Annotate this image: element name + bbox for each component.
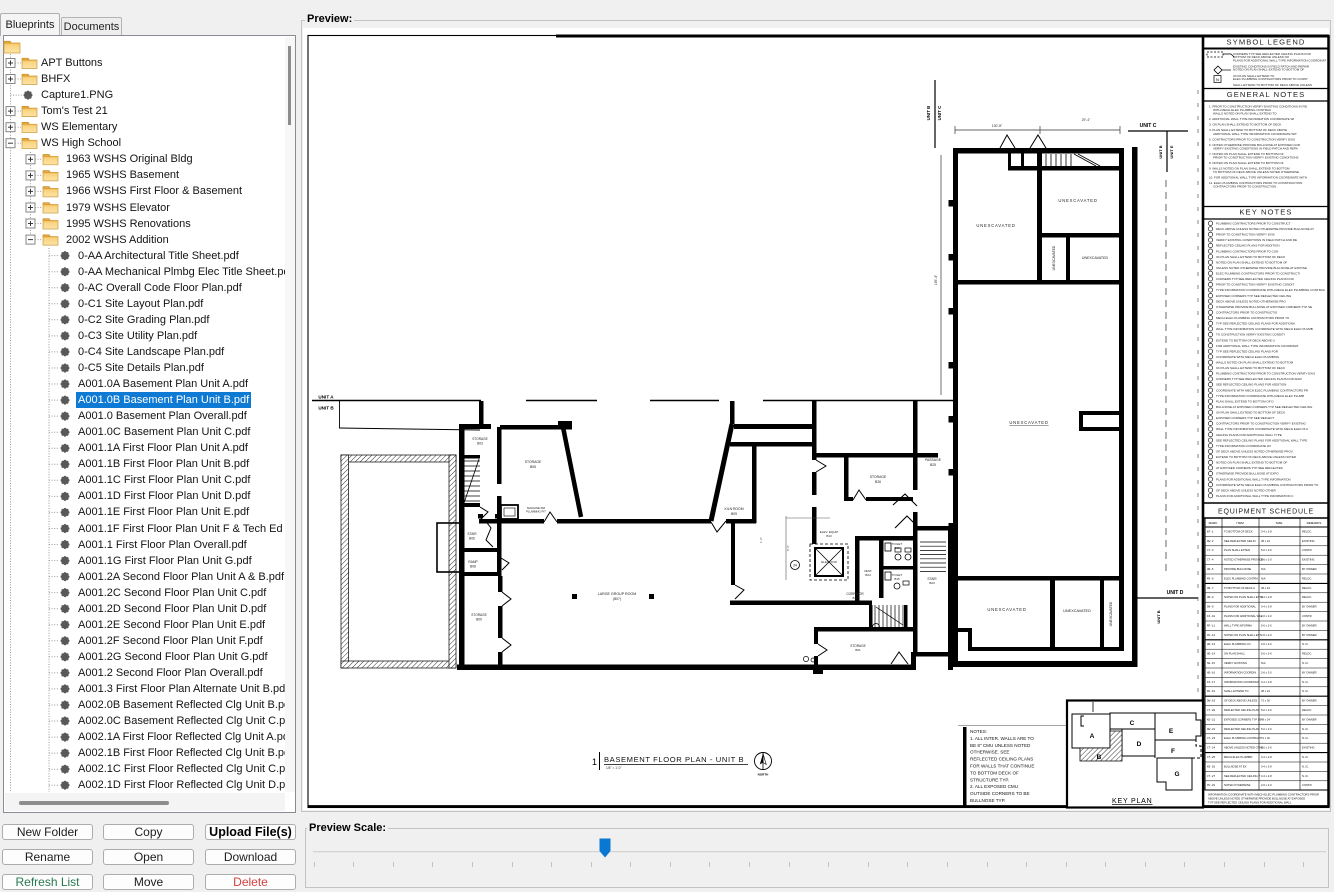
svg-text:PRIOR TO CONSTRUCTION VERIFY E: PRIOR TO CONSTRUCTION VERIFY EXIS bbox=[1216, 233, 1275, 237]
svg-text:3-4 x 2-8: 3-4 x 2-8 bbox=[1261, 595, 1272, 599]
svg-text:ABOVE UNLESS NOTED OTHE: ABOVE UNLESS NOTED OTHE bbox=[1224, 746, 1263, 750]
svg-text:WALL TYPE INFORMATION COORDINA: WALL TYPE INFORMATION COORDINATE WITH ME… bbox=[1216, 327, 1313, 331]
svg-text:72 x 30: 72 x 30 bbox=[1261, 699, 1270, 703]
svg-text:EXPOSED CORNERS TYP SE: EXPOSED CORNERS TYP SE bbox=[1224, 717, 1262, 721]
svg-text:5-0 x 2-6: 5-0 x 2-6 bbox=[1261, 623, 1272, 627]
svg-text:CT-27: CT-27 bbox=[1207, 775, 1215, 778]
svg-text:BY OWNER: BY OWNER bbox=[1302, 623, 1317, 627]
svg-text:CONTR.: CONTR. bbox=[1302, 548, 1313, 552]
svg-text:RELOC.: RELOC. bbox=[1302, 529, 1312, 533]
svg-text:2-6 x 2-0: 2-6 x 2-0 bbox=[1261, 783, 1272, 787]
svg-text:CT-20: CT-20 bbox=[1207, 709, 1215, 712]
svg-text:EXISTING: EXISTING bbox=[1302, 539, 1315, 543]
svg-text:48 x 24: 48 x 24 bbox=[1261, 689, 1270, 693]
svg-text:HD-14: HD-14 bbox=[1207, 653, 1215, 656]
svg-text:PLUMBING CONTRACTORS PRIOR TO: PLUMBING CONTRACTORS PRIOR TO CONSTRUCT bbox=[1216, 222, 1291, 226]
svg-text:WALLS NOTED ON PLAN SHALL EXTE: WALLS NOTED ON PLAN SHALL EXTEND TO BOTT… bbox=[1216, 361, 1294, 365]
svg-text:UNLESS NOTED OTHERWISE PROVIDE: UNLESS NOTED OTHERWISE PROVIDE BULLNOSE … bbox=[1216, 266, 1307, 270]
svg-text:WALLS NOTED ON PLAN SHALL EXTE: WALLS NOTED ON PLAN SHALL EXTEND TO bbox=[1213, 112, 1277, 116]
svg-text:3-4 x 2-8: 3-4 x 2-8 bbox=[1261, 764, 1272, 768]
svg-text:SHALL EXTEND TO: SHALL EXTEND TO bbox=[1224, 689, 1248, 693]
svg-text:N.I.C.: N.I.C. bbox=[1302, 689, 1309, 693]
svg-text:ELEC PLUMBING CO: ELEC PLUMBING CO bbox=[1224, 642, 1251, 646]
svg-text:SEE REFLECTED CEILIN: SEE REFLECTED CEILIN bbox=[1224, 539, 1256, 543]
svg-text:ELEC PLUMBING CONTRACT: ELEC PLUMBING CONTRACT bbox=[1224, 736, 1262, 740]
svg-text:NOTED OTHERWISE: NOTED OTHERWISE bbox=[1224, 783, 1251, 787]
svg-text:SYMBOL LEGEND: SYMBOL LEGEND bbox=[1226, 38, 1305, 47]
svg-text:BULLNOSE AT EXPOSED CORNERS TY: BULLNOSE AT EXPOSED CORNERS TYP SEE REFL… bbox=[1216, 405, 1313, 409]
svg-text:RF-11: RF-11 bbox=[1207, 624, 1215, 627]
svg-text:PLAN SHALL EXTEN: PLAN SHALL EXTEN bbox=[1224, 548, 1250, 552]
svg-text:BY OWNER: BY OWNER bbox=[1302, 567, 1317, 571]
svg-text:REFLECTED CEILING PLANS FOR AD: REFLECTED CEILING PLANS FOR ADDITION bbox=[1216, 244, 1280, 248]
svg-text:REFLECTED CEILING PLAN: REFLECTED CEILING PLAN bbox=[1224, 708, 1259, 712]
svg-text:RF-18: RF-18 bbox=[1207, 690, 1215, 693]
svg-text:N.I.C.: N.I.C. bbox=[1302, 774, 1309, 778]
svg-text:2-6 x 2-0: 2-6 x 2-0 bbox=[1261, 642, 1272, 646]
svg-text:KEY NOTES: KEY NOTES bbox=[1239, 208, 1292, 217]
svg-text:ELEC PLUMBING CONTRACTORS PRIO: ELEC PLUMBING CONTRACTORS PRIOR TO CONST… bbox=[1216, 272, 1300, 276]
svg-text:NOTED ON PLAN SHALL EXTEND TO: NOTED ON PLAN SHALL EXTEND TO BOTTOM OF bbox=[1216, 461, 1287, 465]
svg-text:48 x 24: 48 x 24 bbox=[1261, 586, 1270, 590]
svg-text:N.I.C.: N.I.C. bbox=[1302, 661, 1309, 665]
svg-text:3-4 x 2-8: 3-4 x 2-8 bbox=[1261, 680, 1272, 684]
svg-text:2-6 x 2-0: 2-6 x 2-0 bbox=[1261, 670, 1272, 674]
svg-text:ADDITIONAL WALL TYPE INFORMATI: ADDITIONAL WALL TYPE INFORMATION COORDIN… bbox=[1213, 132, 1297, 136]
svg-text:BY OWNER: BY OWNER bbox=[1302, 699, 1317, 703]
svg-text:ELEC PLUMBING CONTRA: ELEC PLUMBING CONTRA bbox=[1224, 576, 1258, 580]
svg-text:TYPE INFORMATION COORDINATE WI: TYPE INFORMATION COORDINATE WI bbox=[1216, 444, 1271, 448]
svg-text:5-0 x 2-6: 5-0 x 2-6 bbox=[1261, 708, 1272, 712]
svg-text:CT-23: CT-23 bbox=[1207, 737, 1215, 740]
svg-text:CT-4: CT-4 bbox=[1207, 559, 1214, 562]
svg-text:COORDINATE WITH MECH ELEC PLUM: COORDINATE WITH MECH ELEC PLUMBING bbox=[1216, 355, 1280, 359]
svg-text:NOTED OTHERWISE PROVIDE: NOTED OTHERWISE PROVIDE bbox=[1224, 558, 1263, 562]
svg-text:ON PLAN SHALL EXTEND TO BOTTOM: ON PLAN SHALL EXTEND TO BOTTOM OF DECK bbox=[1216, 411, 1285, 415]
svg-text:N: N bbox=[1216, 77, 1219, 82]
svg-text:VERIFY EXISTING CONDITIONS IN: VERIFY EXISTING CONDITIONS IN FIELD PATC… bbox=[1213, 146, 1298, 150]
svg-text:BY OWNER: BY OWNER bbox=[1302, 633, 1317, 637]
svg-text:EXTEND TO BOTTOM OF DECK ABOVE: EXTEND TO BOTTOM OF DECK ABOVE U bbox=[1216, 338, 1275, 342]
svg-text:INFORMATION COORDINAT: INFORMATION COORDINAT bbox=[1224, 680, 1260, 684]
svg-text:AT EXPOSED CORNERS TYP SEE REF: AT EXPOSED CORNERS TYP SEE REFLECTED bbox=[1216, 466, 1284, 470]
svg-text:WT-1: WT-1 bbox=[1207, 530, 1214, 533]
svg-text:SH-9: SH-9 bbox=[1207, 606, 1214, 609]
svg-text:OTHERWISE PROVIDE BULLNOSE AT: OTHERWISE PROVIDE BULLNOSE AT EXPOSED CO… bbox=[1216, 305, 1312, 309]
svg-text:CONTR.: CONTR. bbox=[1302, 783, 1313, 787]
svg-text:5-0 x 2-6: 5-0 x 2-6 bbox=[1261, 727, 1272, 731]
svg-text:BY OWNER: BY OWNER bbox=[1302, 670, 1317, 674]
svg-text:CONTR.: CONTR. bbox=[1302, 614, 1313, 618]
svg-text:SH-15: SH-15 bbox=[1207, 662, 1215, 665]
svg-text:N/A: N/A bbox=[1261, 661, 1266, 665]
svg-text:TYP SEE REFLECTED CEILING PLAN: TYP SEE REFLECTED CEILING PLANS FOR ADDI… bbox=[1208, 801, 1292, 805]
svg-text:2. ADDITIONAL WALL TYPE INFORM: 2. ADDITIONAL WALL TYPE INFORMATION COOR… bbox=[1209, 117, 1294, 121]
svg-text:SIZE: SIZE bbox=[1276, 521, 1283, 525]
svg-text:RELOC.: RELOC. bbox=[1302, 652, 1312, 656]
svg-text:PLAN SHALL EXTEND TO BOTTOM OF: PLAN SHALL EXTEND TO BOTTOM OF D bbox=[1216, 399, 1274, 403]
svg-text:2-6 x 2-0: 2-6 x 2-0 bbox=[1261, 558, 1272, 562]
svg-text:EQUIPMENT SCHEDULE: EQUIPMENT SCHEDULE bbox=[1218, 509, 1314, 516]
svg-text:PLANS FOR ADDITIONAL: PLANS FOR ADDITIONAL bbox=[1224, 605, 1256, 609]
svg-text:NOTED ON PLAN SHALL EXT: NOTED ON PLAN SHALL EXT bbox=[1224, 633, 1261, 637]
svg-text:5. CONTRACTORS PRIOR TO CONSTR: 5. CONTRACTORS PRIOR TO CONSTRUCTION VER… bbox=[1209, 137, 1295, 141]
svg-text:72 x 30: 72 x 30 bbox=[1261, 736, 1270, 740]
svg-text:BY OWNER: BY OWNER bbox=[1302, 717, 1317, 721]
svg-text:N.I.C.: N.I.C. bbox=[1302, 680, 1309, 684]
svg-text:TYP SEE REFLECTED CEILING PLAN: TYP SEE REFLECTED CEILING PLANS FOR ADDI… bbox=[1216, 322, 1295, 326]
svg-text:N.I.C.: N.I.C. bbox=[1302, 764, 1309, 768]
svg-text:MECH ELEC PLUMBIN: MECH ELEC PLUMBIN bbox=[1224, 755, 1252, 759]
svg-text:TO BOTTOM OF DECK A: TO BOTTOM OF DECK A bbox=[1224, 586, 1255, 590]
svg-text:10. FOR ADDITIONAL WALL TYPE I: 10. FOR ADDITIONAL WALL TYPE INFORMATION… bbox=[1209, 176, 1307, 180]
svg-text:TYP SEE REFLECTED CEILING PLAN: TYP SEE REFLECTED CEILING PLANS FOR bbox=[1216, 349, 1279, 353]
svg-text:PLUMBING CONTRACTORS PRIOR TO: PLUMBING CONTRACTORS PRIOR TO CON bbox=[1216, 249, 1278, 253]
svg-text:PLANS FOR ADDITIONAL WALL TYPE: PLANS FOR ADDITIONAL WALL TYPE INFORMATI… bbox=[1216, 477, 1291, 481]
svg-text:OF DECK ABOVE UNLESS: OF DECK ABOVE UNLESS bbox=[1224, 699, 1258, 703]
svg-text:NOTED ON PLAN SHALL EXTEND TO: NOTED ON PLAN SHALL EXTEND TO BOTTOM OF bbox=[1233, 68, 1304, 72]
svg-text:TO CONSTRUCTION VERIFY EXISTIN: TO CONSTRUCTION VERIFY EXISTING CONDITI bbox=[1216, 333, 1285, 337]
svg-text:MARK: MARK bbox=[1209, 521, 1218, 525]
svg-text:N.I.C.: N.I.C. bbox=[1302, 727, 1309, 731]
svg-text:WALL TYPE INFORMATION COORDINA: WALL TYPE INFORMATION COORDINATE WITH ME… bbox=[1216, 427, 1308, 431]
svg-text:INFORMATION COORDIN: INFORMATION COORDIN bbox=[1224, 670, 1256, 674]
svg-text:DW-2: DW-2 bbox=[1207, 540, 1214, 543]
svg-text:KD-26: KD-26 bbox=[1207, 765, 1215, 768]
svg-text:FOR ADDITIONAL WALL TYPE INFOR: FOR ADDITIONAL WALL TYPE INFORMATION COO… bbox=[1216, 344, 1299, 348]
svg-text:N.I.C.: N.I.C. bbox=[1302, 642, 1309, 646]
svg-text:3. ON PLAN SHALL EXTEND TO BOT: 3. ON PLAN SHALL EXTEND TO BOTTOM OF DEC… bbox=[1209, 123, 1281, 127]
svg-text:MX-6: MX-6 bbox=[1207, 577, 1214, 580]
svg-text:VERIFY EXISTING CONDITIONS IN: VERIFY EXISTING CONDITIONS IN FIELD PATC… bbox=[1216, 238, 1297, 242]
svg-text:RELOC.: RELOC. bbox=[1302, 576, 1312, 580]
svg-text:RELOC.: RELOC. bbox=[1302, 586, 1312, 590]
svg-text:EXISTING: EXISTING bbox=[1302, 746, 1315, 750]
svg-text:BULLNOSE AT EX: BULLNOSE AT EX bbox=[1224, 764, 1247, 768]
svg-text:OTHERWISE PROVIDE BULLNOSE AT: OTHERWISE PROVIDE BULLNOSE AT EXPO bbox=[1216, 472, 1279, 476]
svg-text:N/A: N/A bbox=[1261, 576, 1266, 580]
svg-text:COORDINATE WITH MECH ELEC PLUM: COORDINATE WITH MECH ELEC PLUMBING CONTR… bbox=[1216, 483, 1319, 487]
svg-text:RELOC.: RELOC. bbox=[1302, 708, 1312, 712]
svg-text:WALL TYPE INFORMA: WALL TYPE INFORMA bbox=[1224, 623, 1252, 627]
svg-text:N/A: N/A bbox=[1261, 567, 1266, 571]
svg-text:5-0 x 2-6: 5-0 x 2-6 bbox=[1261, 548, 1272, 552]
svg-text:5-0 x 2-6: 5-0 x 2-6 bbox=[1261, 652, 1272, 656]
svg-text:BY OWNER: BY OWNER bbox=[1302, 605, 1317, 609]
svg-text:VERIFY EXISTING: VERIFY EXISTING bbox=[1224, 661, 1247, 665]
svg-text:FZ-17: FZ-17 bbox=[1207, 681, 1215, 684]
svg-text:EXPOSED CORNERS TYP SEE REFLEC: EXPOSED CORNERS TYP SEE REFLECT bbox=[1216, 416, 1274, 420]
svg-text:ON PLAN SHALL EXTEND TO BOTTOM: ON PLAN SHALL EXTEND TO BOTTOM OF DECK bbox=[1216, 366, 1285, 370]
svg-text:TO BOTTOM OF DECK: TO BOTTOM OF DECK bbox=[1224, 529, 1253, 533]
svg-text:DECK ABOVE UNLESS NOTED OTHERW: DECK ABOVE UNLESS NOTED OTHERWISE PRO bbox=[1216, 299, 1286, 303]
svg-text:TYPE INFORMATION COORDINATE WI: TYPE INFORMATION COORDINATE WITH MECH EL… bbox=[1216, 394, 1304, 398]
svg-text:48 x 24: 48 x 24 bbox=[1261, 717, 1270, 721]
svg-text:CT-3: CT-3 bbox=[1207, 549, 1214, 552]
svg-text:OV-12: OV-12 bbox=[1207, 634, 1215, 637]
svg-text:5-0 x 2-6: 5-0 x 2-6 bbox=[1261, 746, 1272, 750]
svg-text:DW-19: DW-19 bbox=[1207, 700, 1215, 703]
svg-text:PROVIDE BULLNOSE: PROVIDE BULLNOSE bbox=[1224, 567, 1251, 571]
svg-text:OV-28: OV-28 bbox=[1207, 784, 1215, 787]
svg-text:PRIOR TO CONSTRUCTION VERIFY E: PRIOR TO CONSTRUCTION VERIFY EXISTING CO… bbox=[1216, 283, 1294, 287]
svg-text:N.I.C.: N.I.C. bbox=[1302, 736, 1309, 740]
svg-text:NOTED ON PLAN SHALL EXTEND TO: NOTED ON PLAN SHALL EXTEND TO BOTTOM OF bbox=[1216, 260, 1287, 264]
svg-text:ON PLAN SHALL EXTEND TO BOTTOM: ON PLAN SHALL EXTEND TO BOTTOM OF DECK bbox=[1216, 255, 1285, 259]
svg-text:EXPOSED CORNERS TYP SEE REFLEC: EXPOSED CORNERS TYP SEE REFLECTED CEILIN… bbox=[1216, 294, 1292, 298]
svg-text:PLUMBING CONTRACTORS PRIOR TO: PLUMBING CONTRACTORS PRIOR TO CONSTRUCTI… bbox=[1216, 372, 1315, 376]
svg-text:PLANS FOR ADDITIONAL WALL TYPE: PLANS FOR ADDITIONAL WALL TYPE INFORMATI… bbox=[1233, 58, 1326, 62]
svg-text:ITEM: ITEM bbox=[1236, 521, 1244, 525]
svg-text:ON PLAN SHALL: ON PLAN SHALL bbox=[1224, 652, 1246, 656]
svg-text:48 x 24: 48 x 24 bbox=[1261, 539, 1270, 543]
svg-text:3-4 x 2-8: 3-4 x 2-8 bbox=[1261, 774, 1272, 778]
svg-text:PRIOR TO CONSTRUCTION VERIFY E: PRIOR TO CONSTRUCTION VERIFY EXISTING CO… bbox=[1213, 156, 1299, 160]
svg-text:EXTEND TO BOTTOM OF DECK ABOVE: EXTEND TO BOTTOM OF DECK ABOVE UNLESS NO… bbox=[1216, 455, 1297, 459]
svg-text:NOTED ON PLAN SHALL EXTE: NOTED ON PLAN SHALL EXTE bbox=[1224, 595, 1263, 599]
svg-text:N.I.C.: N.I.C. bbox=[1302, 755, 1309, 759]
svg-text:3-4 x 2-8: 3-4 x 2-8 bbox=[1261, 755, 1272, 759]
svg-text:OF DECK ABOVE UNLESS NOTED OTH: OF DECK ABOVE UNLESS NOTED OTHERWISE PRO… bbox=[1216, 450, 1293, 454]
svg-text:SEE REFLECTED CEILING PLANS FO: SEE REFLECTED CEILING PLANS FOR ADDITION bbox=[1216, 383, 1286, 387]
svg-text:REMARKS: REMARKS bbox=[1307, 521, 1322, 525]
svg-text:2-6 x 2-0: 2-6 x 2-0 bbox=[1261, 614, 1272, 618]
svg-text:SEE REFLECTED CEILING PLANS FO: SEE REFLECTED CEILING PLANS FOR ADDITION… bbox=[1216, 438, 1307, 442]
svg-text:CT-24: CT-24 bbox=[1207, 747, 1215, 750]
svg-text:TYPE INFORMATION COORDINATE WI: TYPE INFORMATION COORDINATE WITH MECH EL… bbox=[1216, 288, 1326, 292]
svg-text:CONTRACTORS PRIOR TO CONSTRUCT: CONTRACTORS PRIOR TO CONSTRUCTIO bbox=[1216, 311, 1278, 315]
svg-text:GENERAL NOTES: GENERAL NOTES bbox=[1227, 90, 1306, 99]
svg-text:3-4 x 2-8: 3-4 x 2-8 bbox=[1261, 529, 1272, 533]
svg-text:PLANS FOR ADDITIONAL WAL: PLANS FOR ADDITIONAL WAL bbox=[1224, 614, 1263, 618]
svg-text:OF DECK ABOVE UNLESS NOTED OTH: OF DECK ABOVE UNLESS NOTED OTHER bbox=[1216, 488, 1277, 492]
svg-text:RELOC.: RELOC. bbox=[1302, 595, 1312, 599]
svg-text:MECH ELEC PLUMBING CONTRACTORS: MECH ELEC PLUMBING CONTRACTORS PRIOR TO bbox=[1216, 316, 1290, 320]
svg-text:HD-7: HD-7 bbox=[1207, 587, 1214, 590]
svg-text:DW-22: DW-22 bbox=[1207, 728, 1215, 731]
svg-text:CONTRACTORS PRIOR TO CONSTRUCT: CONTRACTORS PRIOR TO CONSTRUCTION VERIFY… bbox=[1216, 422, 1306, 426]
svg-text:CT-25: CT-25 bbox=[1207, 756, 1215, 759]
svg-text:CORNERS TYP SEE REFLECTED CEIL: CORNERS TYP SEE REFLECTED CEILING PLANS … bbox=[1216, 277, 1295, 281]
svg-text:HD-8: HD-8 bbox=[1207, 596, 1214, 599]
svg-text:3-4 x 2-8: 3-4 x 2-8 bbox=[1261, 605, 1272, 609]
svg-text:EXISTING: EXISTING bbox=[1302, 558, 1315, 562]
svg-text:ELEC PLUMBING CONTRACTORS PRIO: ELEC PLUMBING CONTRACTORS PRIOR TO CONST bbox=[1233, 77, 1308, 81]
svg-text:REFLECTED CEILING PLAN: REFLECTED CEILING PLAN bbox=[1224, 727, 1259, 731]
svg-text:KD-21: KD-21 bbox=[1207, 718, 1215, 721]
svg-text:HD-5: HD-5 bbox=[1207, 568, 1214, 571]
svg-text:CORNERS TYP SEE REFLECTED CEIL: CORNERS TYP SEE REFLECTED CEILING PLANS … bbox=[1216, 377, 1302, 381]
svg-text:CONTRACTORS PRIOR TO CONSTRUCT: CONTRACTORS PRIOR TO CONSTRUCTION bbox=[1213, 185, 1276, 189]
svg-text:8. NOTED ON PLAN SHALL EXTEND: 8. NOTED ON PLAN SHALL EXTEND TO BOTTOM … bbox=[1209, 161, 1284, 165]
svg-text:TO BOTTOM OF DECK ABOVE UNLESS: TO BOTTOM OF DECK ABOVE UNLESS NOTED OTH… bbox=[1213, 170, 1299, 174]
svg-text:SEE REFLECTED CEILING P: SEE REFLECTED CEILING P bbox=[1224, 774, 1260, 778]
svg-text:DECK ABOVE UNLESS NOTED OTHERW: DECK ABOVE UNLESS NOTED OTHERWISE PROVID… bbox=[1216, 227, 1314, 231]
svg-text:CEILING PLANS FOR ADDITIONAL W: CEILING PLANS FOR ADDITIONAL WALL TYPE bbox=[1216, 433, 1282, 437]
svg-text:HD-16: HD-16 bbox=[1207, 671, 1215, 674]
svg-text:FZ-10: FZ-10 bbox=[1207, 615, 1215, 618]
svg-text:SHALL EXTEND TO BOTTOM OF DECK: SHALL EXTEND TO BOTTOM OF DECK ABOVE UNL… bbox=[1233, 83, 1312, 87]
svg-text:2-6 x 2-0: 2-6 x 2-0 bbox=[1261, 633, 1272, 637]
svg-text:COORDINATE WITH MECH ELEC PLUM: COORDINATE WITH MECH ELEC PLUMBING CONTR… bbox=[1216, 388, 1309, 392]
svg-text:PLANS FOR ADDITIONAL WALL TYPE: PLANS FOR ADDITIONAL WALL TYPE INFORMATI… bbox=[1216, 494, 1294, 498]
svg-text:HD-13: HD-13 bbox=[1207, 643, 1215, 646]
